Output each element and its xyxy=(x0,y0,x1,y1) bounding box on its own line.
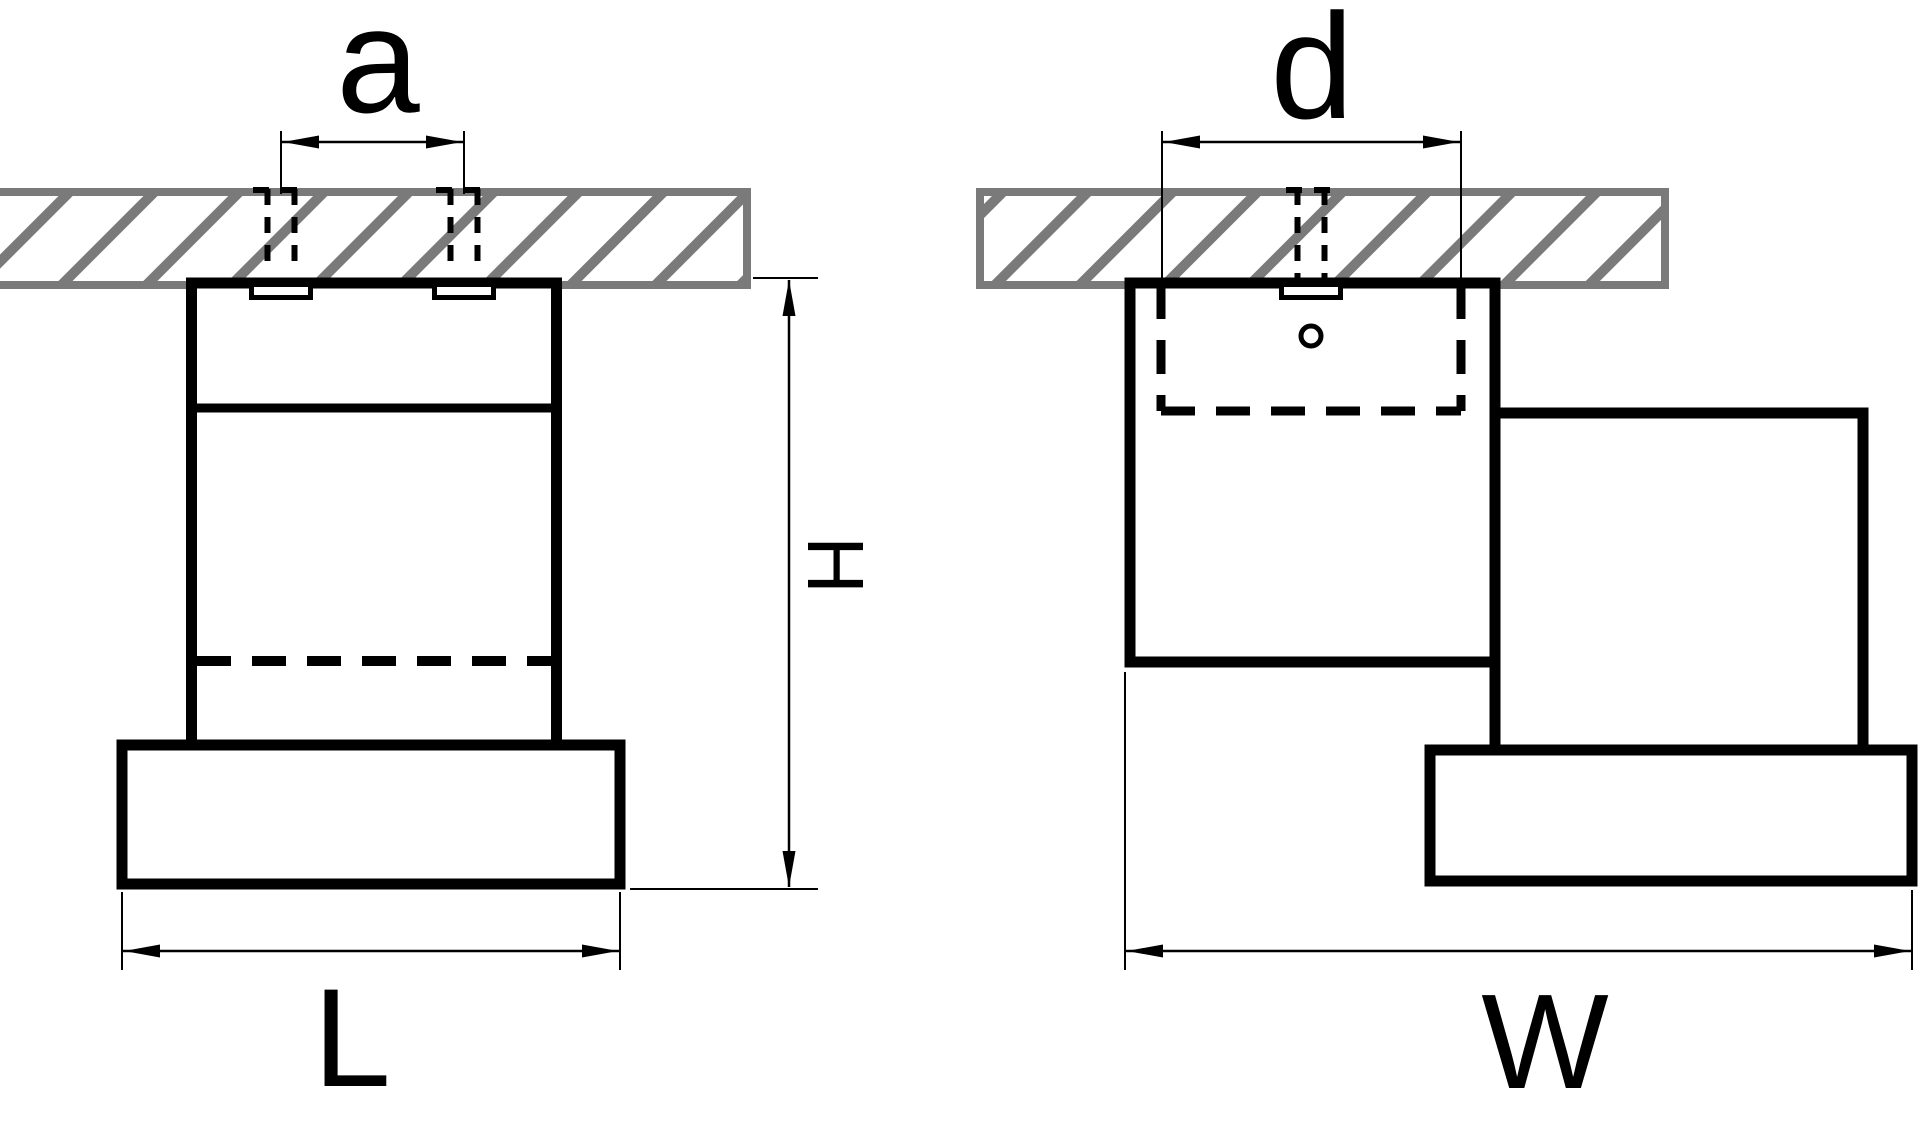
label-W: W xyxy=(1481,966,1608,1117)
screw-head-side xyxy=(1282,285,1341,298)
base-plate-side xyxy=(1430,750,1912,881)
arrowhead-up xyxy=(783,280,796,316)
dimension-L: L xyxy=(122,892,620,1116)
dimension-H: H xyxy=(630,278,880,889)
arrowhead-down xyxy=(783,851,796,887)
fixture-body-front xyxy=(192,283,557,746)
screw-head-right xyxy=(435,285,494,298)
arrowhead-left xyxy=(1127,945,1163,958)
arrowhead-right xyxy=(426,136,462,149)
lamp-head-side xyxy=(1495,413,1863,750)
screw-head-left xyxy=(252,285,311,298)
luminaire-dimension-drawing: a H L xyxy=(0,0,1928,1128)
label-H: H xyxy=(791,536,880,594)
dimension-drawing-canvas: a H L xyxy=(0,0,1928,1128)
front-view: a H L xyxy=(0,0,880,1116)
arrowhead-left xyxy=(1164,136,1200,149)
dimension-a: a xyxy=(281,0,464,194)
arrowhead-right xyxy=(582,945,618,958)
arrowhead-left xyxy=(283,136,319,149)
arrowhead-left xyxy=(124,945,160,958)
ceiling-hatch-side xyxy=(980,192,1665,285)
screw-point-circle xyxy=(1301,326,1321,346)
ceiling-hatch-front xyxy=(0,192,747,285)
arrowhead-right xyxy=(1423,136,1459,149)
base-plate-front xyxy=(122,745,620,884)
label-d: d xyxy=(1270,0,1353,150)
label-L: L xyxy=(313,959,391,1116)
label-a: a xyxy=(336,0,420,144)
arrowhead-right xyxy=(1874,945,1910,958)
side-view: d W xyxy=(980,0,1912,1117)
